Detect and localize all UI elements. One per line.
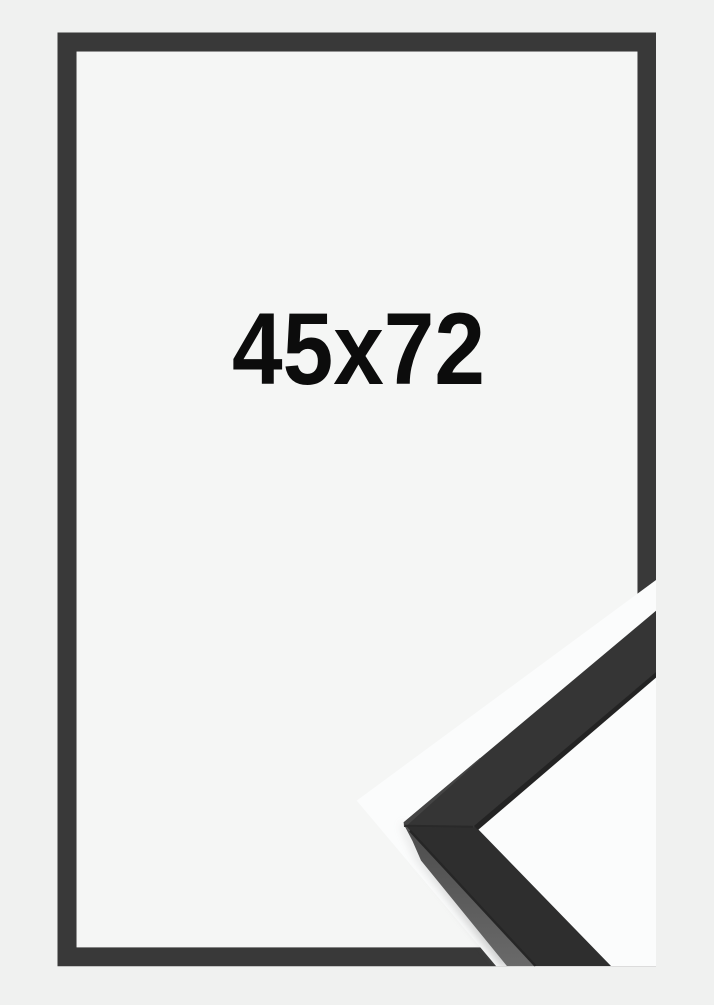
- svg-text:45x72: 45x72: [232, 292, 485, 406]
